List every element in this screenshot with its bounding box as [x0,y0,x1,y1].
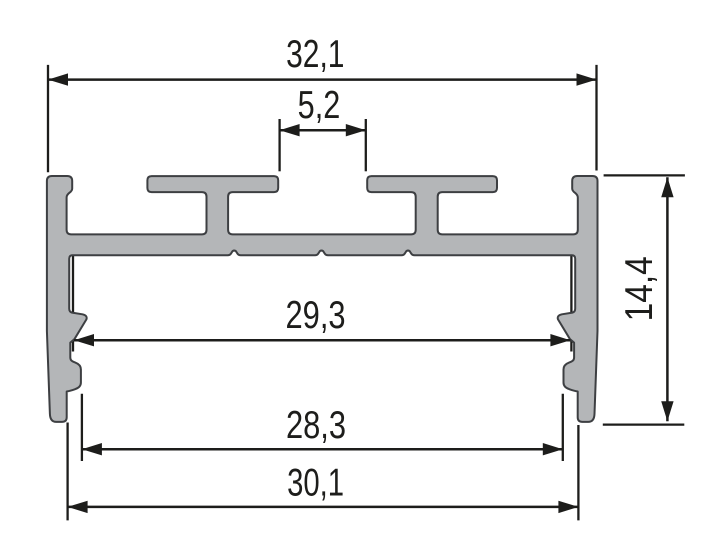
svg-text:29,3: 29,3 [285,294,345,337]
svg-text:14,4: 14,4 [617,256,661,321]
svg-text:28,3: 28,3 [286,404,346,447]
svg-text:5,2: 5,2 [298,83,341,126]
svg-text:30,1: 30,1 [287,462,344,505]
svg-text:32,1: 32,1 [286,34,344,77]
